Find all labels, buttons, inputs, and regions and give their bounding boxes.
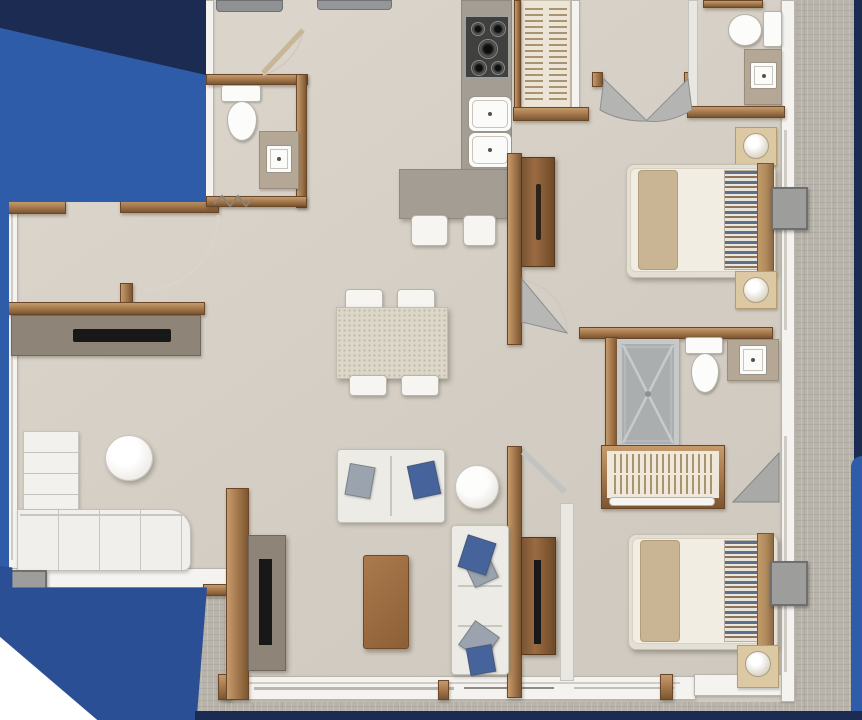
double-door-leaf-right [646,79,692,122]
closet-mid-door-leaf [733,453,779,502]
floorplan-render [0,0,862,720]
shower-drain [645,391,651,397]
bath1-door-leaf [263,30,303,73]
border-blue-right-strip [851,456,862,713]
bedroom2-door-leaf [523,452,565,492]
double-door-leaf-left [600,79,647,121]
threshold-zigzag [214,196,252,206]
border-navy-bottom-bar [195,711,862,720]
border-blue-left-strip [0,200,9,572]
border-navy-right-strip [854,0,862,460]
entry-door-arc [143,215,218,290]
